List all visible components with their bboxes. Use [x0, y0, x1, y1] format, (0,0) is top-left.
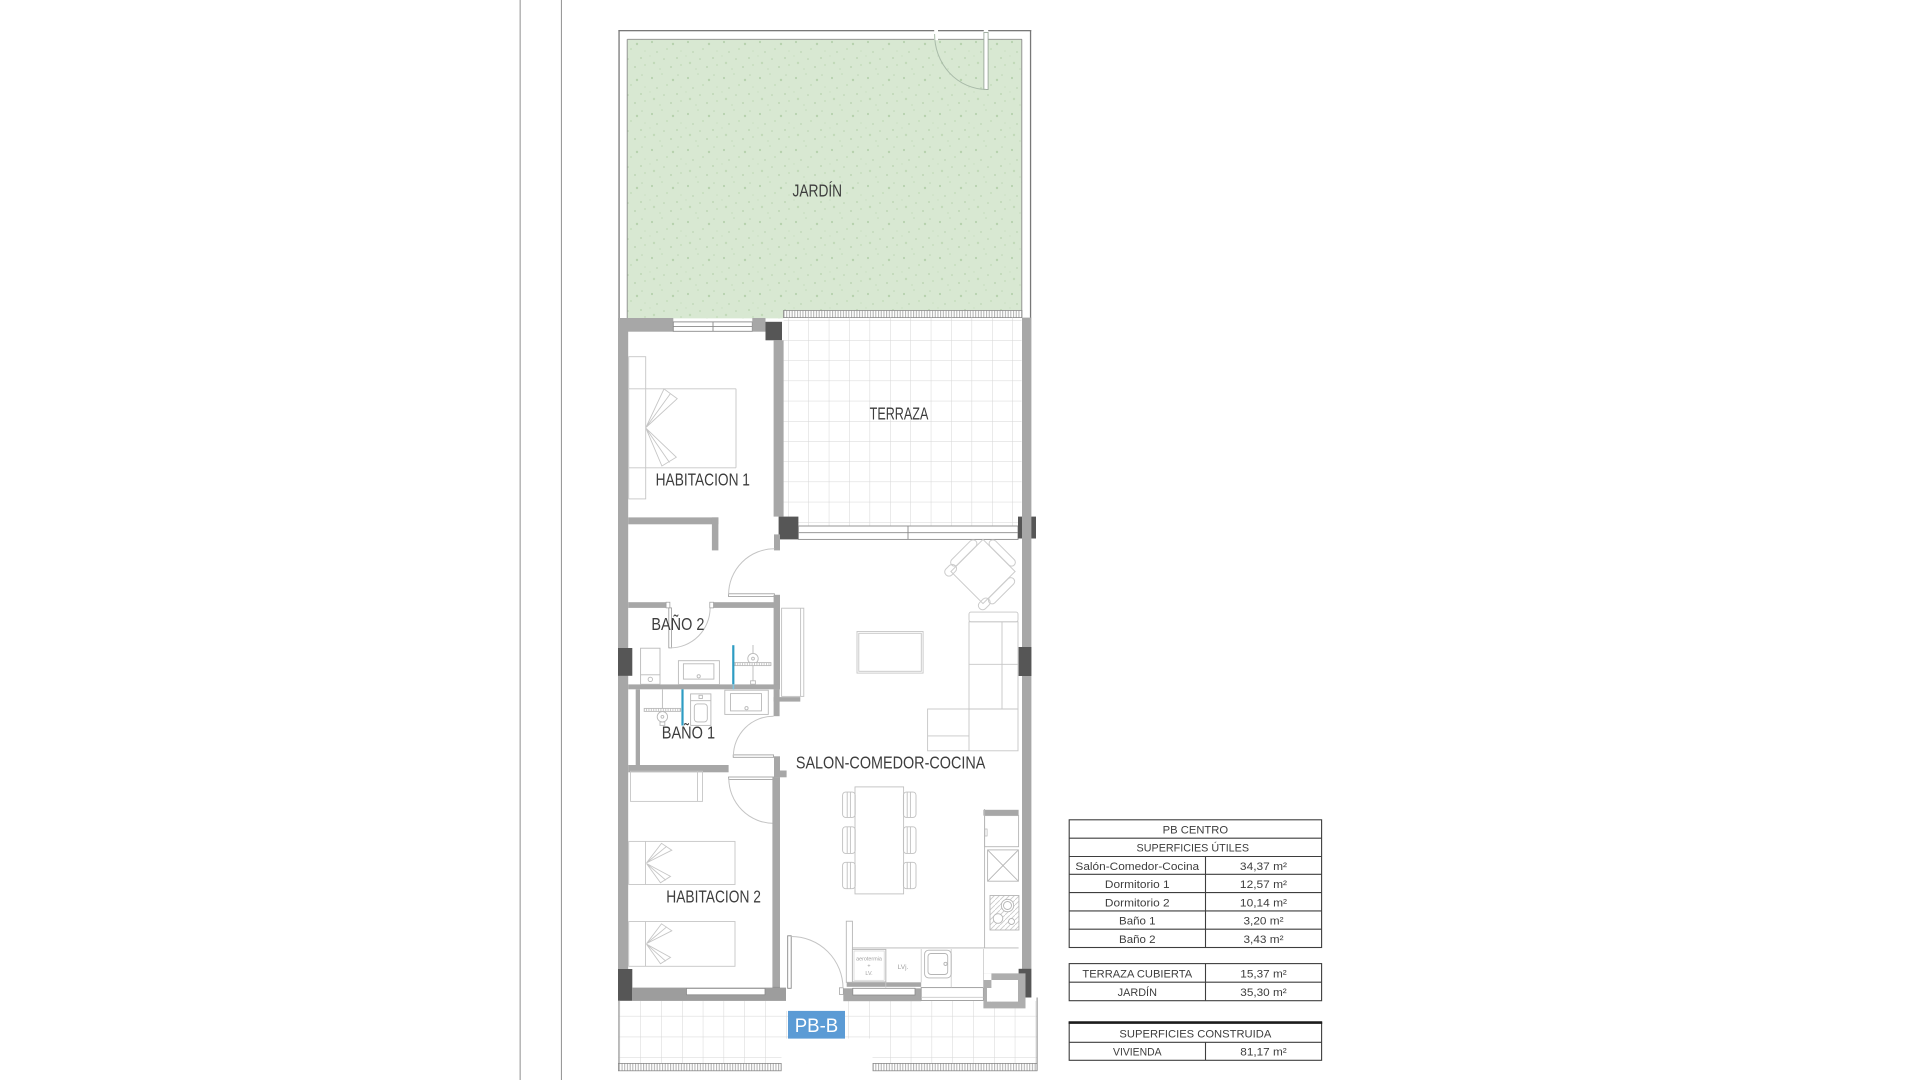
svg-text:HABITACION 2: HABITACION 2 — [666, 886, 761, 906]
svg-text:Salón-Comedor-Cocina: Salón-Comedor-Cocina — [1075, 861, 1200, 873]
svg-text:TERRAZA: TERRAZA — [870, 404, 929, 424]
svg-text:HABITACION 1: HABITACION 1 — [656, 470, 750, 490]
svg-text:Baño 2: Baño 2 — [1119, 934, 1156, 946]
svg-text:SALON-COMEDOR-COCINA: SALON-COMEDOR-COCINA — [796, 753, 986, 773]
svg-text:SUPERFICIES CONSTRUIDA: SUPERFICIES CONSTRUIDA — [1119, 1028, 1272, 1040]
svg-text:Baño 1: Baño 1 — [1119, 916, 1156, 928]
svg-text:3,43 m²: 3,43 m² — [1244, 934, 1284, 946]
svg-text:aerotermia: aerotermia — [856, 957, 882, 963]
svg-text:12,57 m²: 12,57 m² — [1240, 879, 1287, 891]
svg-text:LV.: LV. — [865, 971, 872, 977]
svg-text:34,37 m²: 34,37 m² — [1240, 861, 1287, 873]
svg-text:SUPERFICIES ÚTILES: SUPERFICIES ÚTILES — [1137, 842, 1250, 855]
svg-text:TERRAZA CUBIERTA: TERRAZA CUBIERTA — [1082, 969, 1192, 981]
svg-text:JARDÍN: JARDÍN — [1118, 986, 1157, 999]
svg-text:81,17 m²: 81,17 m² — [1240, 1047, 1287, 1059]
svg-text:PB-B: PB-B — [795, 1016, 839, 1037]
svg-text:PB CENTRO: PB CENTRO — [1163, 824, 1229, 836]
svg-text:+: + — [867, 964, 870, 970]
svg-text:15,37 m²: 15,37 m² — [1240, 969, 1287, 981]
svg-text:JARDÍN: JARDÍN — [793, 181, 843, 201]
svg-text:VIVIENDA: VIVIENDA — [1113, 1047, 1162, 1059]
svg-text:Dormitorio 1: Dormitorio 1 — [1105, 879, 1170, 891]
svg-text:Dormitorio 2: Dormitorio 2 — [1105, 897, 1170, 909]
svg-text:35,30 m²: 35,30 m² — [1240, 987, 1287, 999]
svg-text:BAÑO 2: BAÑO 2 — [651, 614, 704, 634]
svg-text:LVj.: LVj. — [898, 964, 909, 971]
svg-text:BAÑO 1: BAÑO 1 — [662, 723, 715, 743]
svg-text:3,20 m²: 3,20 m² — [1244, 916, 1284, 928]
svg-text:10,14 m²: 10,14 m² — [1240, 897, 1287, 909]
